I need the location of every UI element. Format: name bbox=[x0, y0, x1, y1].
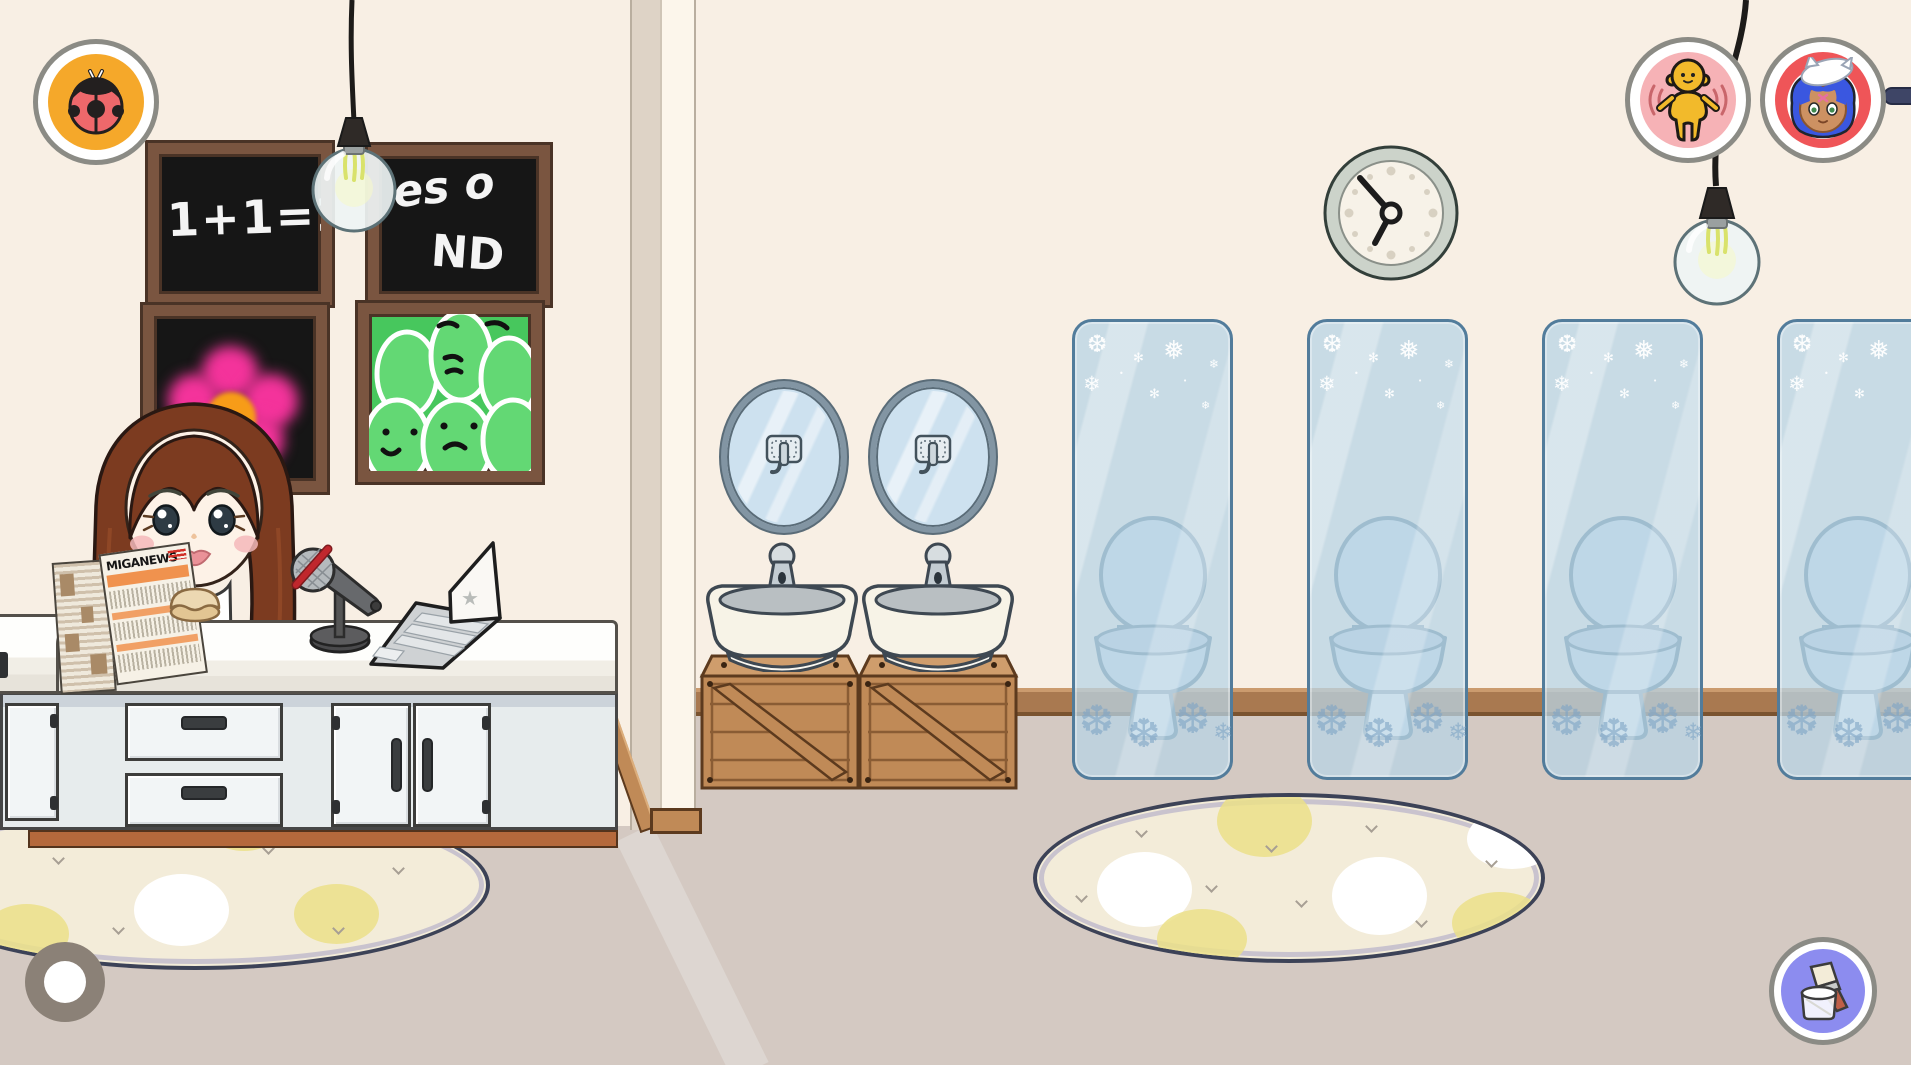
sink[interactable] bbox=[856, 540, 1020, 672]
door-handle bbox=[391, 738, 402, 792]
snowflake-icon: ❆ bbox=[1557, 332, 1577, 356]
rug-dot bbox=[1217, 793, 1312, 857]
door-handle bbox=[422, 738, 433, 792]
chalk-text-no: ND bbox=[429, 226, 506, 282]
snowflake-icon: ❆ bbox=[1362, 714, 1396, 754]
cactus-art bbox=[369, 314, 531, 471]
sparkle-dot-icon: • bbox=[1119, 370, 1124, 378]
curtain-rod-stub bbox=[1883, 87, 1911, 105]
snowflake-icon: ❅ bbox=[1868, 338, 1890, 364]
sparkle-dot-icon: • bbox=[1354, 370, 1359, 378]
snowflake-icon: ❆ bbox=[1645, 698, 1680, 740]
snowflake-icon: ❄ bbox=[1671, 400, 1680, 411]
bread-bun[interactable] bbox=[166, 584, 224, 624]
yellow-doll-icon bbox=[1646, 54, 1730, 146]
cabinet-left-panel[interactable] bbox=[5, 703, 59, 821]
snowflake-icon: ❄ bbox=[1553, 374, 1571, 395]
snowflake-icon: ❆ bbox=[1087, 332, 1107, 356]
rug-dot bbox=[294, 884, 379, 944]
snowflake-icon: ❄ bbox=[1679, 358, 1689, 370]
snowflake-icon: ✻ bbox=[1133, 352, 1144, 365]
snowflake-icon: ❄ bbox=[1444, 358, 1454, 370]
game-scene: 1+1=2 es o ND bbox=[0, 0, 1911, 1065]
cabinet-door-right[interactable] bbox=[413, 703, 491, 827]
lamp-socket bbox=[1700, 188, 1734, 218]
laptop-screen bbox=[450, 543, 500, 622]
sparkle-dot-icon: • bbox=[1418, 378, 1422, 385]
wooden-crate bbox=[698, 652, 862, 792]
frosted-glass-panel[interactable]: ❆ ✻ ❅ ❄ ❄ ✻ ❄ • • ❆ ❆ ❆ ❄ bbox=[1542, 319, 1703, 780]
snowflake-icon: ✻ bbox=[1149, 388, 1160, 401]
snowflake-icon: ❆ bbox=[1784, 700, 1819, 742]
snowflake-icon: ❄ bbox=[1209, 358, 1219, 370]
snowflake-icon: ❄ bbox=[1788, 374, 1806, 395]
snowflake-icon: ✻ bbox=[1603, 352, 1614, 365]
desk-drawer-bottom[interactable] bbox=[125, 773, 283, 827]
snowflake-icon: ❄ bbox=[1213, 720, 1233, 744]
home-button[interactable] bbox=[25, 942, 105, 1022]
snowflake-icon: ✻ bbox=[1368, 352, 1379, 365]
ladybug-badge-button[interactable] bbox=[33, 39, 159, 165]
rug-dot bbox=[134, 874, 229, 946]
snowflake-icon: ❄ bbox=[1448, 720, 1468, 744]
snowflake-icon: ❆ bbox=[1127, 714, 1161, 754]
drawer-handle bbox=[181, 786, 227, 800]
wooden-crate bbox=[856, 652, 1020, 792]
right-rug bbox=[1033, 793, 1545, 963]
rug-dot bbox=[1157, 909, 1247, 963]
snowflake-icon: ❄ bbox=[1083, 374, 1101, 395]
snowflake-icon: ❆ bbox=[1079, 700, 1114, 742]
snowflake-icon: ✻ bbox=[1384, 388, 1395, 401]
rug-dot bbox=[1467, 809, 1545, 869]
partition-wall bbox=[660, 0, 696, 810]
cactus-painting bbox=[358, 303, 542, 482]
desk-plinth bbox=[28, 830, 618, 848]
desk-return-counter bbox=[0, 614, 64, 694]
desk-drawer-top[interactable] bbox=[125, 703, 283, 761]
snowflake-icon: ✻ bbox=[1854, 388, 1865, 401]
snowflake-icon: ❅ bbox=[1398, 338, 1420, 364]
sparkle-dot-icon: • bbox=[1824, 370, 1829, 378]
frosted-glass-panel[interactable]: ❆ ✻ ❅ ❄ ❄ ✻ ❄ • • ❆ ❆ ❆ ❄ bbox=[1072, 319, 1233, 780]
desk-cabinet bbox=[0, 692, 618, 830]
snowflake-icon: ❆ bbox=[1880, 698, 1911, 740]
sparkle-dot-icon: • bbox=[1653, 378, 1657, 385]
snowflake-icon: ❆ bbox=[1314, 700, 1349, 742]
kid-character-badge-button[interactable] bbox=[1760, 37, 1886, 163]
drawer-handle bbox=[181, 716, 227, 730]
sparkle-dot-icon: • bbox=[1589, 370, 1594, 378]
snowflake-icon: ❆ bbox=[1549, 700, 1584, 742]
snowflake-icon: ❆ bbox=[1832, 714, 1866, 754]
sink-bowl bbox=[720, 586, 844, 614]
snowflake-icon: ❆ bbox=[1175, 698, 1210, 740]
hook-icon[interactable] bbox=[764, 433, 804, 479]
snowflake-icon: ✻ bbox=[1619, 388, 1630, 401]
sink-bowl bbox=[876, 586, 1000, 614]
hook-icon[interactable] bbox=[913, 433, 953, 479]
cabinet-door-left[interactable] bbox=[331, 703, 411, 827]
snowflake-icon: ❄ bbox=[1201, 400, 1210, 411]
laptop[interactable]: ★ bbox=[360, 535, 510, 675]
ladybug-icon bbox=[64, 69, 128, 135]
lamp-socket bbox=[338, 118, 370, 146]
snowflake-icon: ❄ bbox=[1683, 720, 1703, 744]
blush bbox=[234, 536, 258, 553]
frosted-glass-panel[interactable]: ❆ ✻ ❅ ❄ ✻ • ❆ ❆ ❆ bbox=[1777, 319, 1911, 780]
partition-wall-shadow bbox=[630, 0, 660, 830]
snowflake-icon: ❄ bbox=[1318, 374, 1336, 395]
appliance-handle bbox=[0, 652, 8, 678]
snowflake-icon: ❅ bbox=[1163, 338, 1185, 364]
snowflake-icon: ❆ bbox=[1792, 332, 1812, 356]
sparkle-dot-icon: • bbox=[1183, 378, 1187, 385]
snowflake-icon: ✻ bbox=[1838, 352, 1849, 365]
partition-base-block bbox=[650, 808, 702, 834]
newspaper-red-mark bbox=[168, 549, 187, 561]
mic-stand bbox=[335, 593, 344, 637]
frosted-glass-panel[interactable]: ❆ ✻ ❅ ❄ ❄ ✻ ❄ • • ❆ ❆ ❆ ❄ bbox=[1307, 319, 1468, 780]
wall-clock bbox=[1321, 143, 1461, 283]
sink[interactable] bbox=[700, 540, 864, 672]
snowflake-icon: ❆ bbox=[1322, 332, 1342, 356]
blue-hair-kid-icon bbox=[1780, 57, 1866, 143]
snowflake-icon: ❆ bbox=[1410, 698, 1445, 740]
snowflake-icon: ❄ bbox=[1436, 400, 1445, 411]
lamp-cord bbox=[351, 0, 354, 122]
laptop-logo: ★ bbox=[461, 586, 479, 610]
paint-bucket-brush-icon bbox=[1791, 959, 1855, 1023]
paint-decorate-button[interactable] bbox=[1769, 937, 1877, 1045]
snowflake-icon: ❅ bbox=[1633, 338, 1655, 364]
hanging-lamp[interactable] bbox=[300, 0, 410, 240]
rug-dot bbox=[1452, 892, 1545, 954]
rug-dot bbox=[1332, 857, 1427, 935]
doll-character-badge-button[interactable] bbox=[1625, 37, 1751, 163]
snowflake-icon: ❆ bbox=[1597, 714, 1631, 754]
home-button-center bbox=[44, 961, 86, 1003]
